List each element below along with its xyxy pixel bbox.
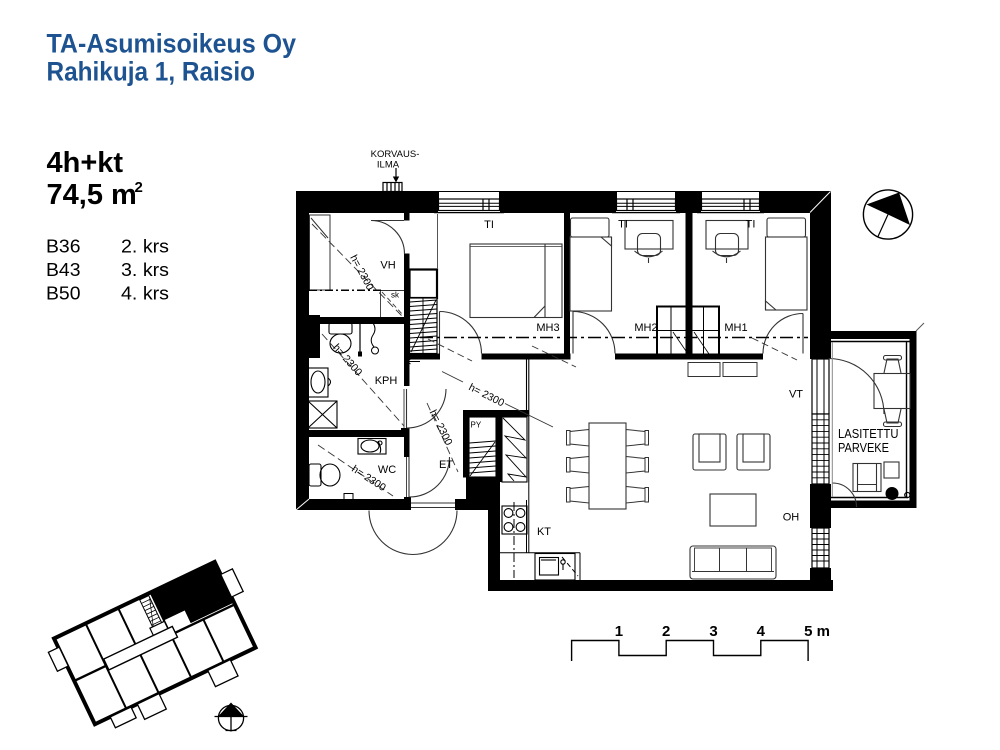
svg-text:Rahikuja 1, Raisio: Rahikuja 1, Raisio <box>47 57 256 87</box>
svg-text:TI: TI <box>746 219 756 231</box>
svg-text:ET: ET <box>439 459 453 471</box>
svg-text:TI: TI <box>618 219 628 231</box>
svg-text:LT: LT <box>302 413 309 421</box>
svg-text:VH: VH <box>380 260 395 272</box>
svg-text:2: 2 <box>662 623 670 640</box>
svg-text:2: 2 <box>135 179 143 196</box>
svg-text:4: 4 <box>757 623 766 640</box>
svg-text:3: 3 <box>709 623 717 640</box>
svg-text:WC: WC <box>378 464 396 476</box>
svg-text:2. krs: 2. krs <box>121 236 169 256</box>
svg-text:VT: VT <box>789 389 803 401</box>
svg-text:3. krs: 3. krs <box>121 260 169 280</box>
svg-text:TA-Asumisoikeus Oy: TA-Asumisoikeus Oy <box>47 29 297 59</box>
svg-text:PARVEKE: PARVEKE <box>838 440 889 455</box>
svg-text:B50: B50 <box>46 284 81 304</box>
svg-text:MH3: MH3 <box>536 322 559 334</box>
svg-text:sk: sk <box>391 291 400 300</box>
svg-text:PY: PY <box>471 421 482 430</box>
svg-text:B43: B43 <box>46 260 81 280</box>
svg-text:ILMA: ILMA <box>377 160 400 171</box>
svg-text:4. krs: 4. krs <box>121 284 169 304</box>
svg-text:B36: B36 <box>46 236 81 256</box>
svg-text:MH2: MH2 <box>634 322 657 334</box>
svg-text:1: 1 <box>615 623 623 640</box>
svg-text:LASITETTU: LASITETTU <box>838 426 899 441</box>
svg-text:MH1: MH1 <box>724 322 747 334</box>
svg-text:OH: OH <box>783 512 800 524</box>
svg-text:TI: TI <box>484 219 494 231</box>
svg-text:5 m: 5 m <box>804 623 830 640</box>
svg-text:KPH: KPH <box>375 375 398 387</box>
svg-text:KORVAUS-: KORVAUS- <box>371 149 420 160</box>
svg-text:KT: KT <box>537 526 551 538</box>
svg-text:74,5 m: 74,5 m <box>47 179 137 211</box>
svg-text:4h+kt: 4h+kt <box>47 147 124 179</box>
